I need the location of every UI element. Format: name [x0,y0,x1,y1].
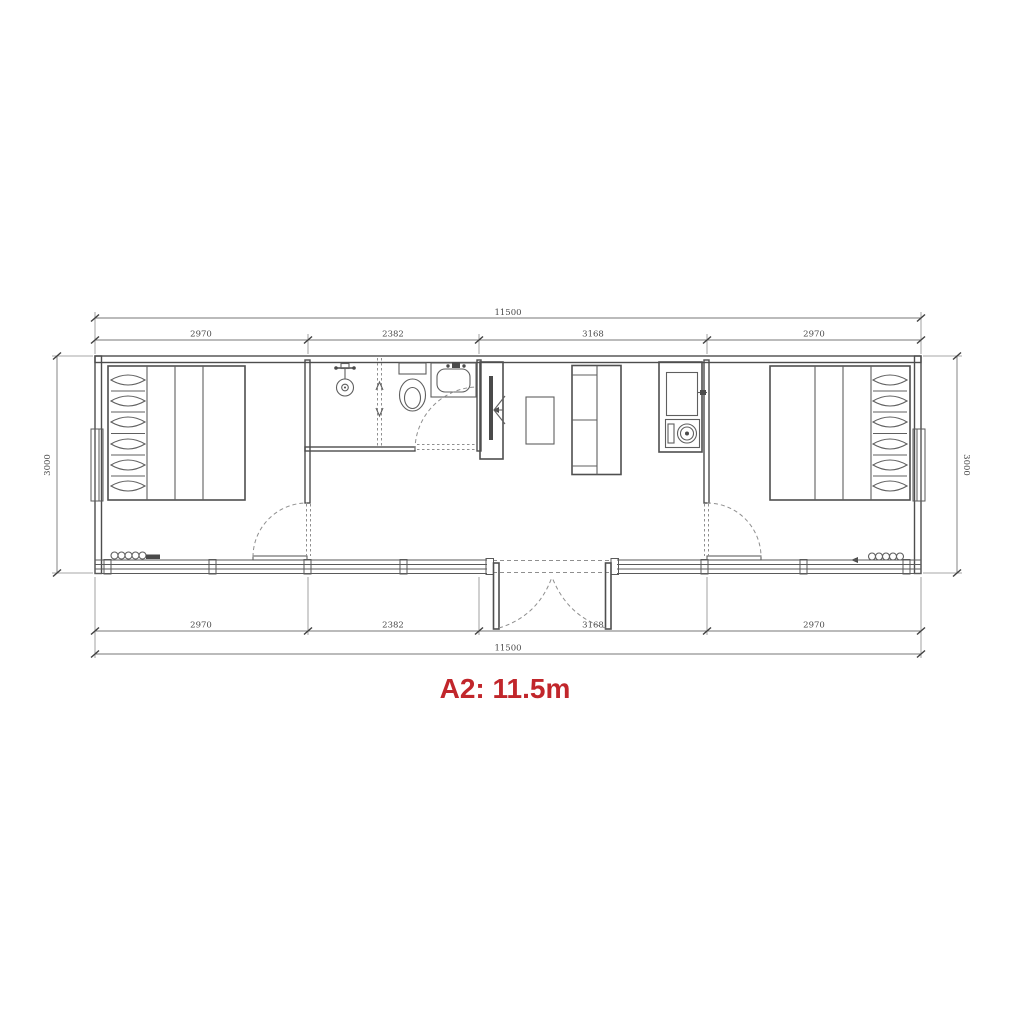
dimension-chain-bottom: 2970 2382 3168 2970 11500 [91,577,925,658]
dim-bottom-seg4-label: 2970 [803,621,825,631]
outer-walls [95,356,921,574]
sofa [572,366,621,475]
dim-bottom-total-label: 11500 [494,644,521,654]
shower-screen [376,358,383,447]
bedroom-left [91,366,311,560]
dim-bottom-seg2-label: 2382 [382,621,404,631]
window-band-bottom [95,560,921,575]
cooktop [666,420,700,448]
bedroom-door-right [705,503,762,560]
floor-plan-drawing: 11500 2970 2382 3168 2970 2970 2382 3168… [0,0,1024,1024]
dim-bottom-seg1-label: 2970 [190,621,212,631]
dim-top-seg2-label: 2382 [382,330,404,340]
shower [334,364,356,397]
kitchen-unit [659,362,707,452]
toilet [399,363,426,411]
double-bed-left [108,366,245,500]
partition-walls [305,360,709,503]
bedroom-right [705,366,926,563]
coffee-table [526,397,554,444]
radiator-left [111,552,160,559]
radiator-right [851,553,904,563]
dim-top-total-label: 11500 [494,308,521,318]
dim-top-seg3-label: 3168 [582,330,604,340]
dimension-chain-top: 11500 2970 2382 3168 2970 [91,308,925,354]
kitchen-sink [667,373,708,416]
entrance-double-door [486,559,619,630]
dimension-right: 3000 [923,353,971,577]
living-area [480,362,621,475]
double-bed-right [770,366,910,500]
dim-right-label: 3000 [961,454,971,476]
bedroom-door-left [253,503,311,560]
tv-cabinet [480,362,505,459]
bathroom [334,358,478,450]
floor-plan-page: 11500 2970 2382 3168 2970 2970 2382 3168… [0,0,1024,1024]
dim-bottom-seg3-label: 3168 [582,621,604,631]
dim-top-seg1-label: 2970 [190,330,212,340]
plan-caption: A2: 11.5m [440,673,571,704]
dim-left-label: 3000 [43,454,53,476]
dim-top-seg4-label: 2970 [803,330,825,340]
dimension-left: 3000 [43,353,93,577]
